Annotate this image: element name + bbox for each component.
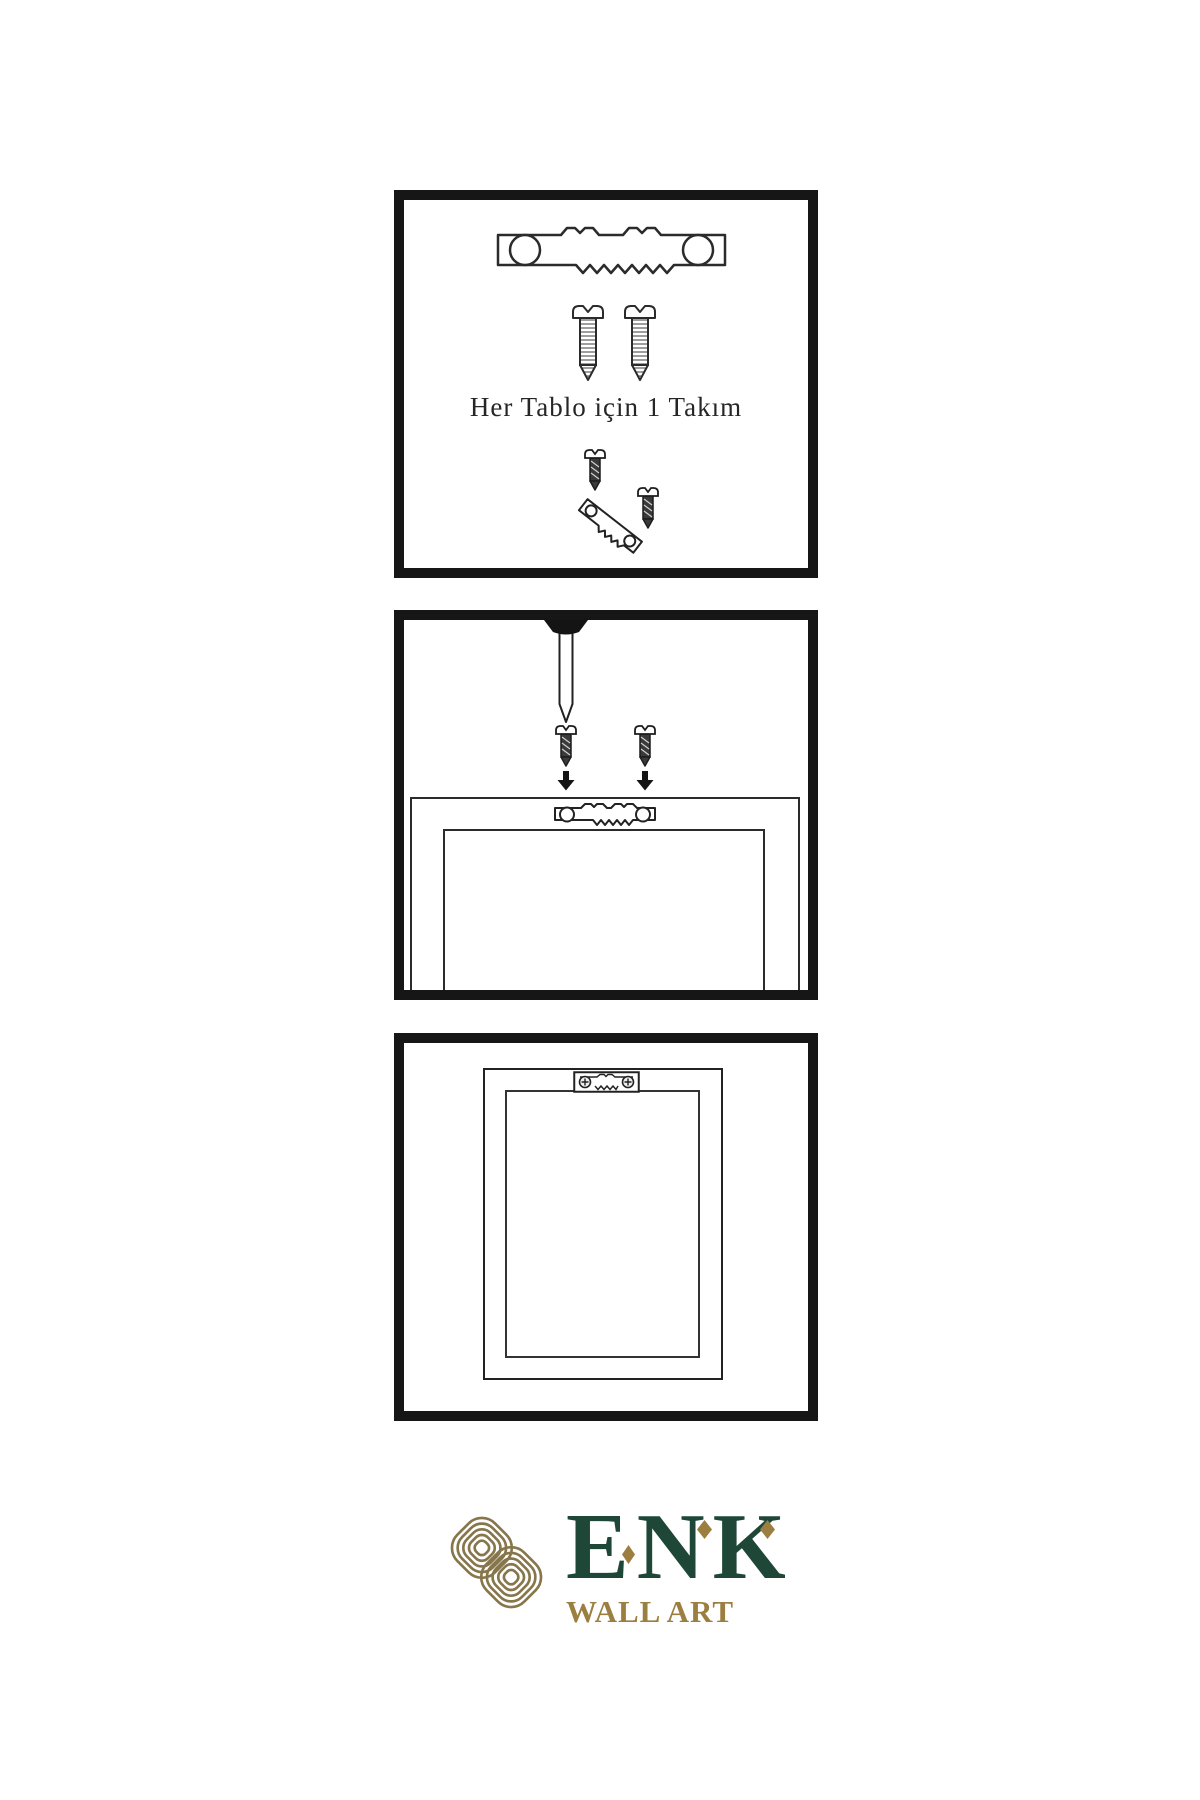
sawtooth-hanger-icon [495, 223, 728, 277]
down-arrow-icon [557, 771, 575, 791]
install-panel [394, 610, 818, 1000]
angled-hanger-assembly-icon [576, 447, 668, 559]
sawtooth-hanger-mounted-icon [553, 802, 657, 827]
canvas-back-outline [443, 829, 765, 1000]
screw-icon [633, 723, 657, 767]
brand-letter: N [637, 1500, 705, 1594]
brand-subtitle: WALL ART [566, 1594, 734, 1630]
screw-icon [554, 723, 578, 767]
wall-nail-icon [543, 620, 589, 724]
kit-caption: Her Tablo için 1 Takım [404, 392, 808, 423]
brand-letter: K [713, 1500, 786, 1594]
kit-panel: Her Tablo için 1 Takım [394, 190, 818, 578]
sawtooth-hanger-installed-icon [573, 1071, 640, 1093]
down-arrow-icon [636, 771, 654, 791]
canvas-outline [505, 1090, 700, 1358]
screw-icon [570, 302, 606, 382]
result-panel [394, 1033, 818, 1421]
screw-icon [622, 302, 658, 382]
brand-letter: E [566, 1500, 629, 1594]
brand-name: E N K [566, 1500, 786, 1594]
knot-icon [430, 1492, 563, 1633]
